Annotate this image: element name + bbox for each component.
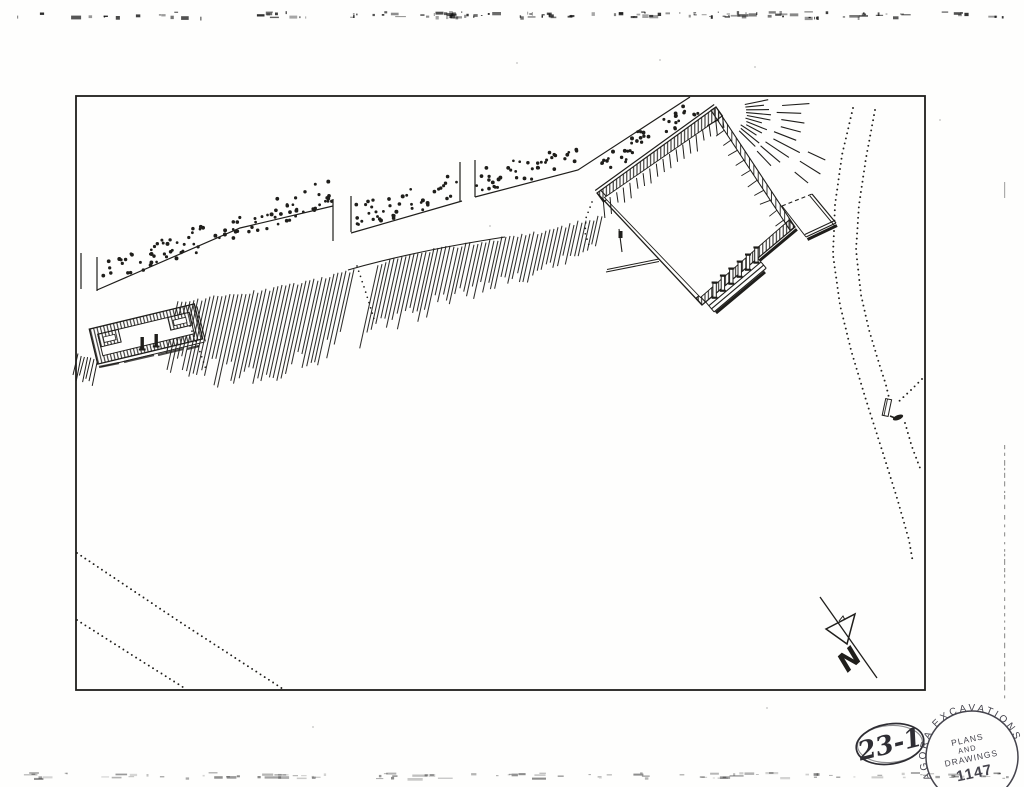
path-dot xyxy=(165,675,167,677)
slope-hachures xyxy=(73,216,602,388)
noise-mark xyxy=(745,12,747,13)
noise-mark xyxy=(642,14,648,18)
stipple-dot xyxy=(295,209,298,212)
stipple-dot xyxy=(107,260,110,263)
path-dot xyxy=(861,186,863,188)
path-dot xyxy=(837,183,839,185)
path-dot xyxy=(371,312,373,314)
noise-mark xyxy=(512,774,518,777)
stipple-dot xyxy=(674,115,677,118)
noise-mark xyxy=(549,13,550,16)
path-dot xyxy=(917,462,919,464)
path-dot xyxy=(908,437,910,439)
noise-dash xyxy=(1004,672,1005,675)
stipple-dot xyxy=(361,220,363,222)
hachure-stroke xyxy=(385,259,398,319)
stipple-dot xyxy=(102,274,105,277)
noise-mark xyxy=(640,773,643,774)
path-dot xyxy=(834,209,836,211)
stipple-dot xyxy=(197,246,199,248)
stipple-dot xyxy=(410,188,412,190)
path-dot xyxy=(877,360,879,362)
noise-mark xyxy=(994,773,1001,775)
stipple-dot xyxy=(388,198,391,201)
noise-dash xyxy=(1004,491,1005,493)
stipple-dot xyxy=(175,257,178,260)
annex-dashed-wall xyxy=(782,194,812,206)
noise-mark xyxy=(29,772,39,774)
stipple-dot xyxy=(608,158,610,160)
stipple-dot xyxy=(153,255,155,257)
noise-mark xyxy=(532,778,546,780)
path-dot xyxy=(857,373,859,375)
path-dot xyxy=(588,243,590,245)
noise-mark xyxy=(679,12,680,14)
path-dot xyxy=(848,122,850,124)
stipple-dot xyxy=(573,160,576,163)
stipple-dot xyxy=(280,213,283,216)
stipple-dot xyxy=(121,262,123,264)
path-dot xyxy=(899,400,901,402)
path-dot xyxy=(882,452,884,454)
noise-mark xyxy=(147,774,149,777)
hachure-stroke xyxy=(381,259,394,319)
noise-mark xyxy=(214,776,223,779)
porch-column-cap xyxy=(745,254,751,256)
path-dot xyxy=(832,251,834,253)
noise-mark xyxy=(275,13,278,16)
stipple-dot xyxy=(256,229,258,231)
path-dot xyxy=(837,292,839,294)
noise-mark xyxy=(737,14,748,17)
path-dot xyxy=(159,608,161,610)
path-dot xyxy=(193,335,195,337)
noise-mark xyxy=(104,16,105,18)
noise-mark xyxy=(508,774,510,775)
stipple-dot xyxy=(620,156,622,158)
path-dot xyxy=(882,375,884,377)
noise-mark xyxy=(434,13,435,16)
path-dot xyxy=(894,492,896,494)
path-dot xyxy=(855,243,857,245)
path-dot xyxy=(842,318,844,320)
stipple-dot xyxy=(629,150,631,152)
path-dot xyxy=(862,181,864,183)
path-dot xyxy=(122,649,124,651)
noise-dash xyxy=(1004,481,1005,486)
stipple-dot xyxy=(304,191,306,193)
stipple-dot xyxy=(488,175,490,177)
path-dot xyxy=(239,660,241,662)
stipple-dot xyxy=(302,211,304,213)
noise-mark xyxy=(836,777,840,779)
noise-mark xyxy=(607,775,612,776)
noise-mark xyxy=(769,11,776,13)
stipple-dot xyxy=(267,214,269,216)
noise-mark xyxy=(693,12,696,13)
path-dot xyxy=(268,679,270,681)
path-dot xyxy=(856,238,858,240)
noise-mark xyxy=(901,14,910,15)
porch-column-base xyxy=(728,283,734,285)
noise-mark xyxy=(995,16,997,18)
stipple-dot xyxy=(239,216,241,218)
west-wall-stub xyxy=(606,262,659,273)
stipple-dot xyxy=(327,200,329,202)
speck xyxy=(754,66,756,68)
noise-mark xyxy=(17,16,18,19)
hachure-stroke xyxy=(424,248,438,310)
stipple-dot xyxy=(188,236,190,238)
stipple-dot xyxy=(232,221,235,224)
hachure-stroke xyxy=(334,273,350,345)
stipple-dot xyxy=(331,200,333,202)
noise-dash xyxy=(1004,653,1005,658)
stipple-dot xyxy=(553,168,556,171)
stipple-dot xyxy=(294,197,296,199)
noise-mark xyxy=(43,776,53,778)
stipple-dot xyxy=(625,159,627,161)
stipple-dot xyxy=(647,135,650,138)
hachure-stroke xyxy=(563,223,570,255)
path-dot xyxy=(93,630,95,632)
stipple-dot xyxy=(493,185,495,187)
noise-mark xyxy=(293,775,298,776)
path-dot xyxy=(859,196,861,198)
noise-mark xyxy=(528,16,536,18)
stipple-dot xyxy=(480,175,483,178)
noise-mark xyxy=(305,16,306,18)
stipple-dot xyxy=(420,202,422,204)
noise-dash xyxy=(1004,676,1005,681)
stipple-dot xyxy=(176,242,178,244)
stipple-dot xyxy=(575,150,577,152)
annex-ne-wall xyxy=(812,194,836,223)
noise-mark xyxy=(481,15,483,16)
stipple-dot xyxy=(389,205,391,207)
path-dot xyxy=(874,427,876,429)
path-dot xyxy=(84,624,86,626)
noise-mark xyxy=(160,776,164,777)
noise-mark xyxy=(949,777,954,778)
stipple-dot xyxy=(496,186,498,188)
annex-se-wall xyxy=(806,223,836,237)
path-dot xyxy=(361,281,363,283)
path-dot xyxy=(855,248,857,250)
noise-mark xyxy=(935,776,940,778)
path-dot xyxy=(356,265,358,267)
path-dot xyxy=(862,176,864,178)
stipple-dot xyxy=(438,188,440,190)
path-dot xyxy=(917,382,919,384)
path-dot xyxy=(177,683,179,685)
path-dot xyxy=(864,165,866,167)
path-dot xyxy=(833,220,835,222)
noise-mark xyxy=(658,13,661,16)
noise-mark xyxy=(1006,776,1009,778)
stipple-dot xyxy=(192,227,195,230)
path-dot xyxy=(188,627,190,629)
radiating-stroke xyxy=(781,120,804,124)
path-dot xyxy=(865,398,867,400)
path-dot xyxy=(900,512,902,514)
path-dot xyxy=(358,270,360,272)
porch-column xyxy=(746,255,749,269)
path-dot xyxy=(841,153,843,155)
stipple-dot xyxy=(169,239,171,241)
north-arrow: N xyxy=(820,597,877,678)
path-dot xyxy=(197,633,199,635)
noise-mark xyxy=(386,773,396,775)
noise-mark xyxy=(532,12,533,16)
noise-mark xyxy=(299,16,301,18)
dotted-paths xyxy=(76,107,923,689)
noise-mark xyxy=(694,14,697,15)
stipple-dot xyxy=(149,264,152,267)
hachure-stroke xyxy=(231,294,246,362)
path-dot xyxy=(851,353,853,355)
stipple-dot xyxy=(358,223,360,225)
noise-mark xyxy=(456,17,459,20)
noise-mark xyxy=(34,778,43,780)
noise-mark xyxy=(40,13,44,15)
noise-mark xyxy=(700,776,705,778)
stipple-dot xyxy=(319,204,321,206)
stipple-dot xyxy=(443,185,445,187)
radiating-stroke xyxy=(777,112,802,113)
path-dot xyxy=(101,569,103,571)
noise-mark xyxy=(859,15,868,17)
radiating-stroke xyxy=(808,152,825,160)
path-dot xyxy=(856,253,858,255)
stipple-dot xyxy=(275,209,278,212)
radiating-stroke xyxy=(745,105,764,107)
noise-mark xyxy=(286,11,288,14)
hachure-stroke xyxy=(583,220,590,252)
noise-mark xyxy=(570,15,572,18)
hachure-stroke xyxy=(212,295,226,359)
porch-column-cap xyxy=(753,246,759,248)
stipple-dot xyxy=(693,113,695,115)
path-dot xyxy=(370,307,372,309)
path-dot xyxy=(197,346,199,348)
stipple-dot xyxy=(193,243,195,245)
path-dot xyxy=(871,340,873,342)
stipple-dot xyxy=(285,219,288,222)
path-dot xyxy=(255,671,257,673)
noise-mark xyxy=(301,775,307,776)
noise-mark xyxy=(130,774,137,776)
path-dot xyxy=(884,457,886,459)
stipple-dot xyxy=(426,202,429,205)
path-dot xyxy=(80,622,82,624)
path-dot xyxy=(864,310,866,312)
stipple-dot xyxy=(232,228,234,230)
path-dot xyxy=(876,355,878,357)
noise-dash xyxy=(1004,542,1005,544)
noise-mark xyxy=(829,775,833,776)
noise-mark xyxy=(542,14,545,15)
stipple-dot xyxy=(365,204,367,206)
path-dot xyxy=(139,659,141,661)
radiating-stroke xyxy=(761,146,781,163)
path-dot xyxy=(184,624,186,626)
path-dot xyxy=(857,269,859,271)
stipple-dot xyxy=(251,226,253,228)
path-dot xyxy=(182,686,184,688)
noise-mark xyxy=(376,778,383,779)
stipple-dot xyxy=(289,219,291,221)
noise-mark xyxy=(161,14,165,16)
stipple-dot xyxy=(531,178,533,180)
noise-mark xyxy=(356,14,357,16)
path-dot xyxy=(866,320,868,322)
stipple-dot xyxy=(286,204,289,207)
noise-mark xyxy=(634,16,635,17)
noise-mark xyxy=(964,13,968,16)
noise-mark xyxy=(382,14,385,16)
path-dot xyxy=(921,378,923,380)
path-dot xyxy=(910,389,912,391)
noise-mark xyxy=(200,17,202,21)
annex xyxy=(782,194,837,240)
path-dot xyxy=(832,256,834,258)
path-dot xyxy=(156,670,158,672)
west-corner-block xyxy=(619,231,623,238)
stipple-dot xyxy=(663,118,665,120)
path-dot xyxy=(360,276,362,278)
path-dot xyxy=(844,142,846,144)
noise-mark xyxy=(534,774,545,776)
path-dot xyxy=(113,577,115,579)
path-dot xyxy=(909,542,911,544)
path-dot xyxy=(863,170,865,172)
path-dot xyxy=(847,127,849,129)
path-dot xyxy=(106,638,108,640)
west-building xyxy=(89,303,205,367)
noise-dash xyxy=(1004,574,1005,577)
noise-mark xyxy=(814,17,815,20)
path-dot xyxy=(862,388,864,390)
noise-mark xyxy=(270,17,279,18)
noise-mark xyxy=(858,17,860,21)
noise-mark xyxy=(737,11,739,15)
path-dot xyxy=(862,305,864,307)
hachure-stroke xyxy=(214,294,234,385)
noise-mark xyxy=(730,775,744,777)
path-dot xyxy=(203,361,205,363)
noise-mark xyxy=(203,775,205,777)
path-dot xyxy=(264,676,266,678)
stipple-dot xyxy=(195,252,197,254)
noise-mark xyxy=(436,16,439,20)
path-dot xyxy=(152,667,154,669)
noise-mark xyxy=(961,12,964,14)
path-dot xyxy=(913,452,915,454)
path-dot xyxy=(843,148,845,150)
sheet-number-label: 23-1 xyxy=(854,723,925,768)
stipple-dot xyxy=(109,267,111,269)
stipple-dot xyxy=(640,141,642,143)
noise-mark xyxy=(718,12,719,13)
stipple-dot xyxy=(372,199,374,201)
stipple-dot xyxy=(395,210,398,213)
path-dot xyxy=(176,619,178,621)
noise-mark xyxy=(496,775,499,776)
noise-mark xyxy=(598,776,602,778)
noise-mark xyxy=(492,12,501,15)
noise-mark xyxy=(289,16,297,19)
porch-column xyxy=(755,248,758,262)
drawing-border xyxy=(76,96,925,690)
path-dot xyxy=(280,687,282,689)
path-dot xyxy=(276,684,278,686)
stipple-dot xyxy=(368,212,370,214)
path-dot xyxy=(910,442,912,444)
path-dot xyxy=(857,217,859,219)
path-dot xyxy=(833,261,835,263)
stipple-dot xyxy=(232,237,235,240)
inner-hachure xyxy=(603,202,605,218)
path-dot xyxy=(858,201,860,203)
path-dot xyxy=(869,135,871,137)
stipple-dot xyxy=(456,181,458,183)
path-dot xyxy=(852,107,854,109)
stipple-dot xyxy=(481,189,483,191)
path-dot xyxy=(914,385,916,387)
porch-column-cap xyxy=(728,268,734,270)
east-enclosure xyxy=(595,100,837,313)
path-dot xyxy=(870,129,872,131)
path-dot xyxy=(840,307,842,309)
path-dot xyxy=(114,643,116,645)
path-dot xyxy=(834,214,836,216)
hachure-stroke xyxy=(231,294,250,381)
wall-fragment xyxy=(882,399,904,422)
noise-mark xyxy=(391,777,394,780)
path-dot xyxy=(243,663,245,665)
noise-dash xyxy=(1004,515,1005,520)
noise-dash xyxy=(1004,633,1005,638)
west-building-pillar xyxy=(141,337,144,349)
stipple-dot xyxy=(674,127,677,130)
stipple-dot xyxy=(682,105,685,108)
noise-mark xyxy=(782,16,784,18)
path-dot xyxy=(891,482,893,484)
hachure-stroke xyxy=(266,286,286,375)
noise-mark xyxy=(806,774,810,776)
path-dot xyxy=(873,114,875,116)
noise-mark xyxy=(129,776,135,777)
path-dot xyxy=(173,681,175,683)
hachure-stroke xyxy=(327,272,342,339)
stipple-dot xyxy=(446,175,449,178)
noise-mark xyxy=(893,16,899,19)
stipple-dot xyxy=(668,120,670,122)
noise-dash xyxy=(1004,453,1005,456)
porch-column xyxy=(738,262,741,276)
stipple-dot xyxy=(684,110,686,112)
path-dot xyxy=(201,356,203,358)
path-dot xyxy=(134,591,136,593)
stipple-dot xyxy=(631,142,633,144)
path-dot xyxy=(589,206,591,208)
west-building-plan xyxy=(89,303,205,367)
noise-dash xyxy=(1004,627,1005,630)
porch-column-cap xyxy=(712,282,718,284)
noise-mark xyxy=(353,13,355,15)
noise-dash xyxy=(1004,505,1005,509)
